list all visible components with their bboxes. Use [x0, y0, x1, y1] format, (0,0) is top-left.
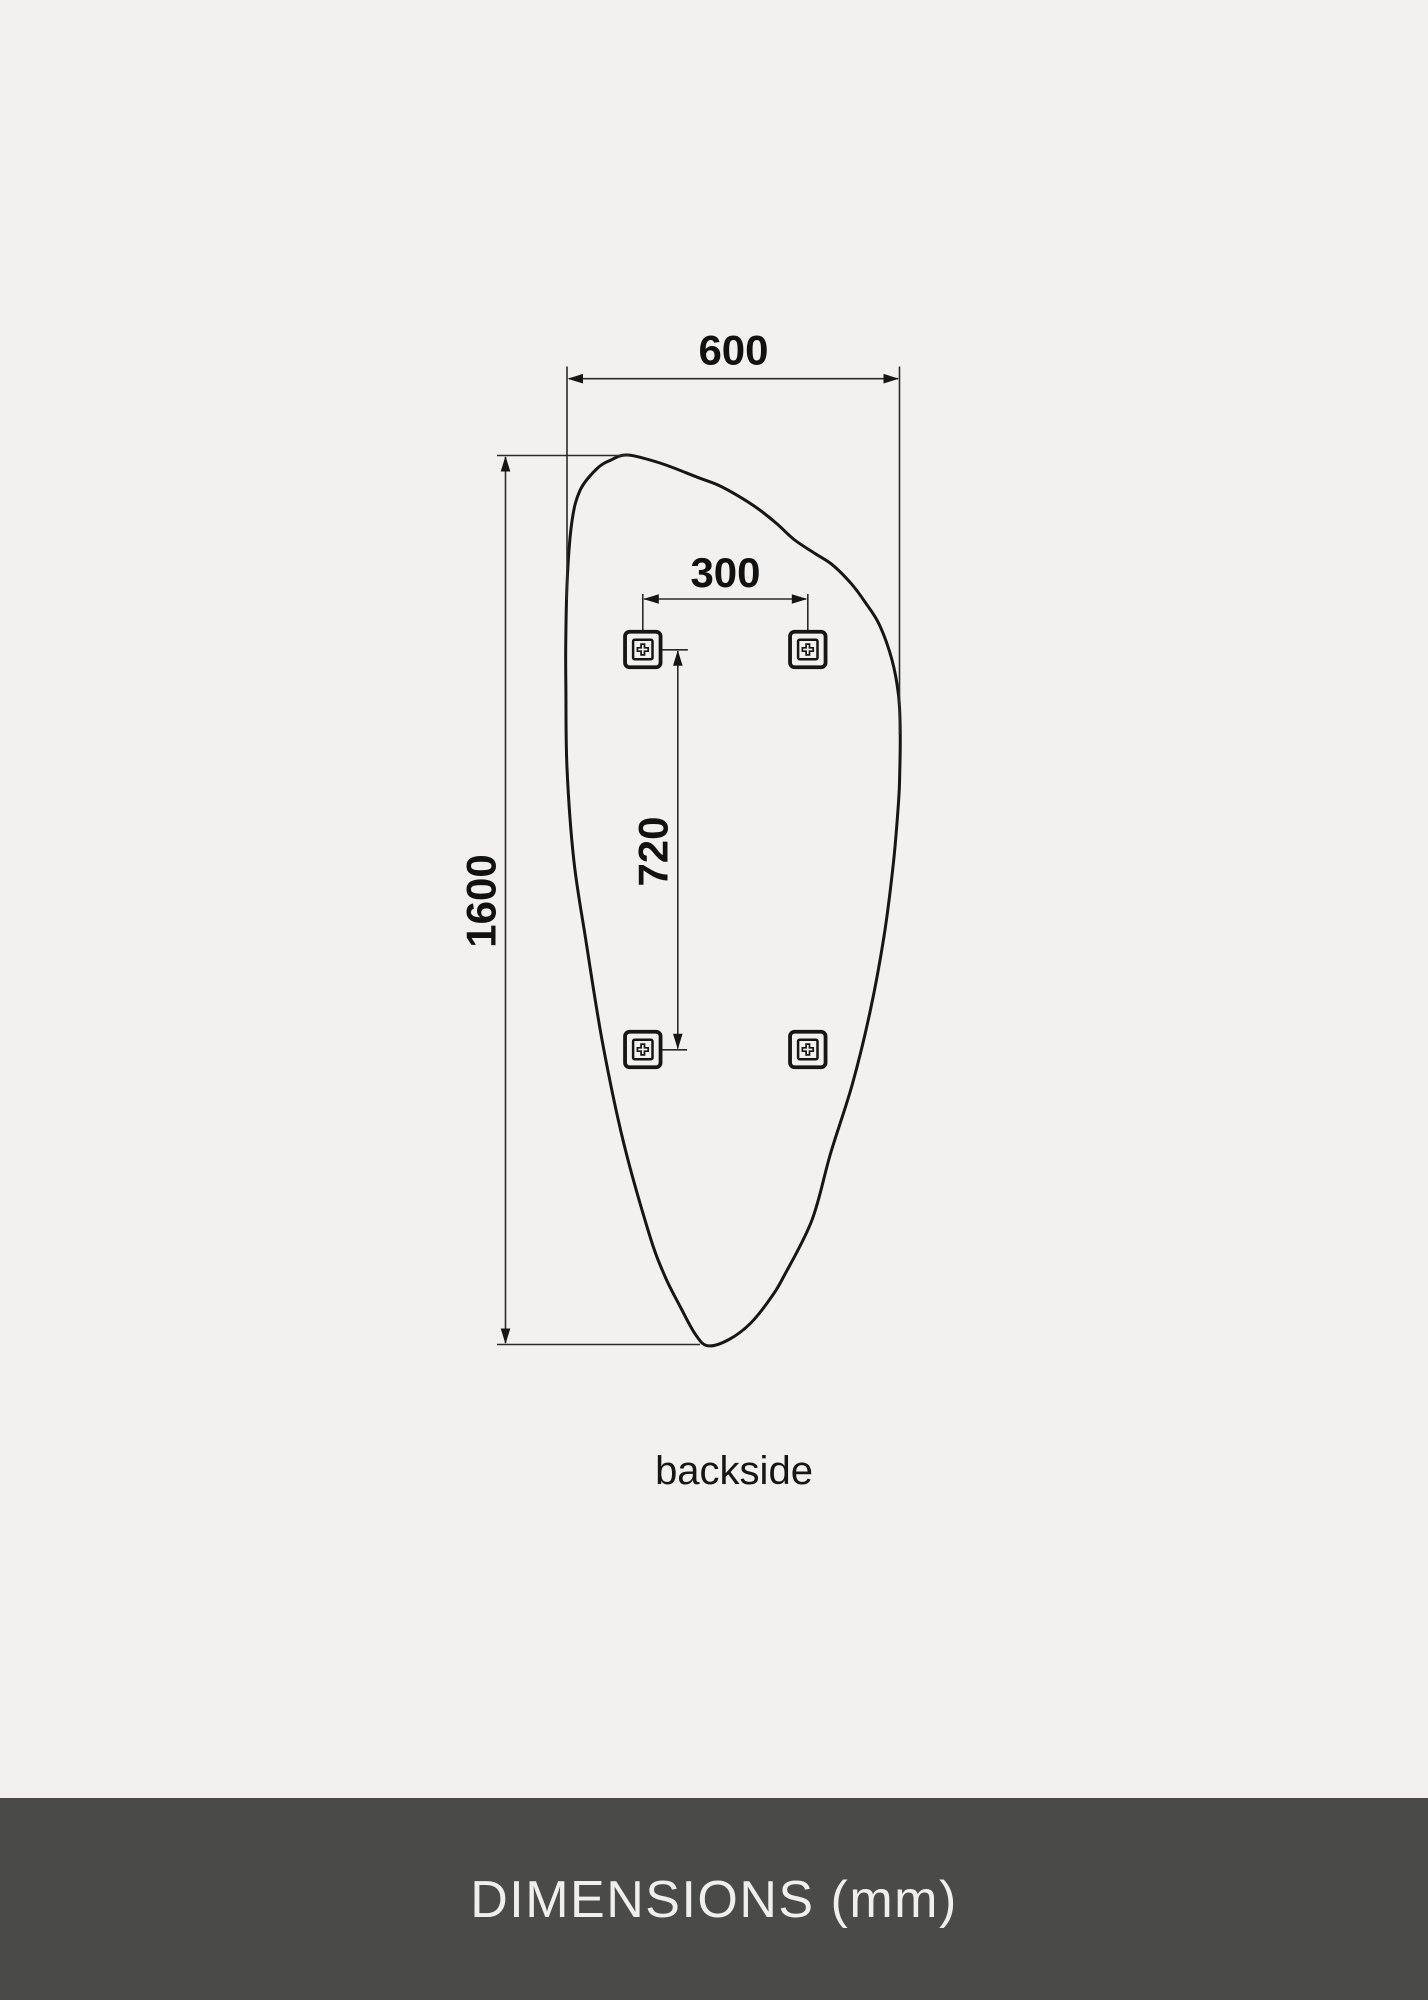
- svg-text:600: 600: [698, 327, 768, 374]
- svg-text:backside: backside: [655, 1449, 813, 1493]
- svg-text:DIMENSIONS (mm): DIMENSIONS (mm): [470, 1871, 958, 1929]
- svg-text:300: 300: [690, 549, 760, 596]
- svg-text:720: 720: [630, 816, 677, 886]
- svg-text:1600: 1600: [458, 854, 505, 947]
